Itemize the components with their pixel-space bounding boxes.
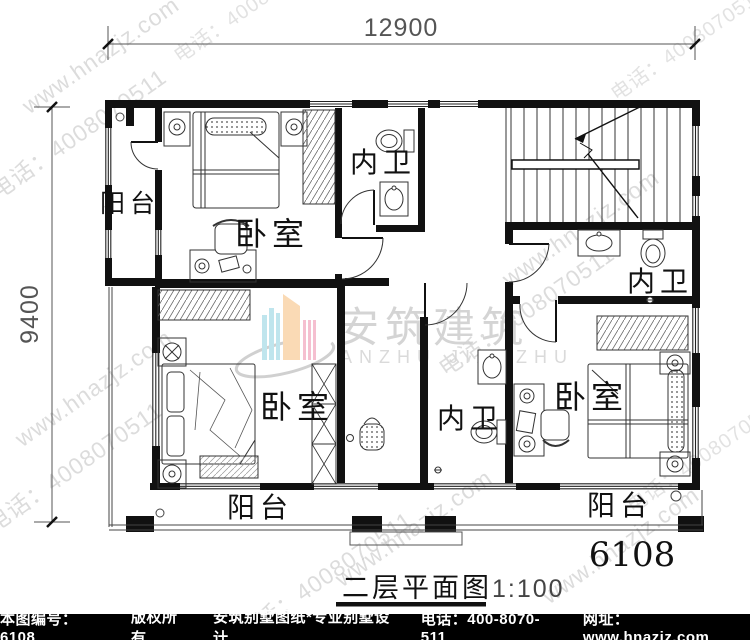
plan-number: 6108 <box>589 535 676 575</box>
lamp-icon <box>667 355 683 371</box>
bed-unmade <box>162 364 255 464</box>
drain-icon <box>116 113 124 121</box>
pillow <box>167 416 184 456</box>
room-label-bath-north: 内卫 <box>350 147 416 178</box>
logo-chinese-name: 安筑建筑 <box>337 304 529 351</box>
room-label-bath-east: 内卫 <box>627 266 693 297</box>
footer-bar: 本图编号：6108 版权所有 安筑别墅图纸*专业别墅设计 电话：400-8070… <box>0 614 750 640</box>
wardrobe <box>158 290 250 320</box>
pillow <box>206 118 266 135</box>
wardrobe <box>597 316 688 350</box>
entry-step <box>350 532 462 545</box>
staircase <box>506 102 680 222</box>
caption-scale: 1:100 <box>492 575 565 603</box>
watermark-logo: 安筑建筑 ANZHU JIANZHU <box>233 294 574 385</box>
door-bedroom-nw <box>342 238 383 279</box>
caption-title: 二层平面图 <box>342 573 492 603</box>
sink-icon <box>578 230 620 256</box>
floor-plan-drawing: 安筑建筑 ANZHU JIANZHU 12900 9400 <box>0 0 750 640</box>
dimension-left-label: 9400 <box>16 284 44 344</box>
drain-icon <box>156 509 164 517</box>
room-label-balcony-south-right: 阳台 <box>587 490 653 521</box>
wardrobe <box>303 110 335 204</box>
footer-plan-code: 本图编号：6108 <box>0 608 109 640</box>
stair-handrail <box>512 160 639 169</box>
dimension-top-label: 12900 <box>364 14 439 42</box>
sink-icon <box>380 182 408 216</box>
room-label-balcony-south-left: 阳台 <box>227 492 293 523</box>
room-label-bedroom-sw: 卧室 <box>260 389 334 425</box>
room-label-balcony-west: 阳台 <box>100 190 160 218</box>
floor-drain-icon <box>646 297 654 303</box>
pillow <box>167 372 184 412</box>
logo-buildings-icon <box>262 294 316 360</box>
room-label-bedroom-nw: 卧室 <box>235 216 309 252</box>
desk <box>190 250 256 282</box>
door-bath-east <box>509 244 549 282</box>
door-balcony-west <box>131 142 158 169</box>
pillow <box>668 370 684 452</box>
toilet-icon <box>641 230 665 267</box>
bag-icon <box>360 418 384 450</box>
desk <box>514 384 544 456</box>
floor-drain-icon <box>434 467 442 473</box>
lamp-icon <box>163 465 181 483</box>
hall-items <box>347 418 385 450</box>
nightstand <box>164 112 190 146</box>
room-label-bath-south: 内卫 <box>437 403 503 434</box>
footer-brand: 安筑别墅图纸*专业别墅设计 <box>213 606 399 640</box>
floor-plan-page: www.hnazjz.com 电话：4008070511 电话：40080705… <box>0 0 750 640</box>
door-bath-north <box>341 190 374 225</box>
drain-icon <box>671 491 681 501</box>
logo-english-name: ANZHU JIANZHU <box>340 347 574 367</box>
lamp-icon <box>286 119 302 135</box>
bedroom-nw-furniture <box>164 110 335 282</box>
sink-icon <box>478 350 506 384</box>
footer-rights: 版权所有 <box>131 606 191 640</box>
footer-site: 网址：www.hnazjz.com <box>583 608 750 640</box>
footer-phone: 电话：400-8070-511 <box>421 608 561 640</box>
bed <box>193 112 279 208</box>
chair <box>541 410 569 446</box>
bed-bench <box>200 456 258 478</box>
room-label-bedroom-se: 卧室 <box>554 379 628 415</box>
lamp-icon <box>169 119 185 135</box>
